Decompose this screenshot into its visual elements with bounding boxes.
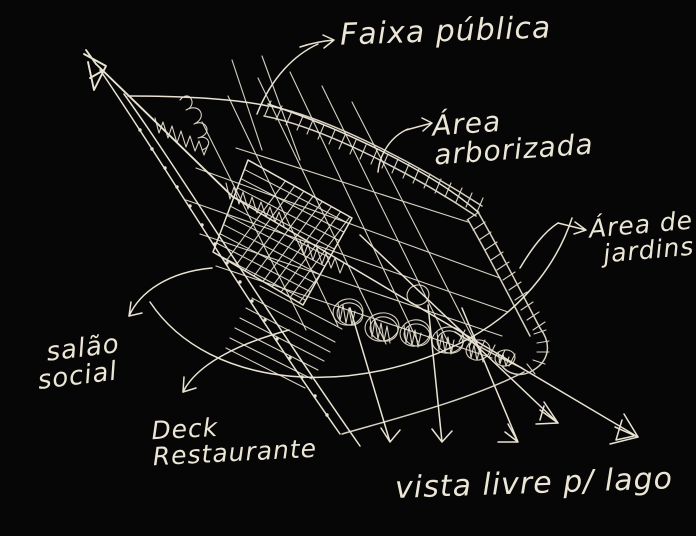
terrace-hatch [226, 286, 342, 388]
leader-deck-restaurante [183, 330, 289, 392]
label-area-jardins: Área de jardins [588, 208, 696, 269]
beach-strip [100, 70, 360, 446]
label-salao-social: salão social [33, 331, 125, 396]
leader-area-jardins [520, 222, 586, 268]
label-area-arborizada: Área arborizada [431, 101, 594, 171]
north-arrow-icon [84, 50, 233, 197]
label-deck-restaurante: Deck Restaurante [151, 410, 318, 471]
label-faixa-publica: Faixa pública [340, 12, 552, 51]
sketch-canvas: Faixa pública Área arborizada Área de ja… [0, 0, 696, 536]
leader-salao-social [129, 268, 212, 316]
view-arrows [350, 305, 518, 442]
